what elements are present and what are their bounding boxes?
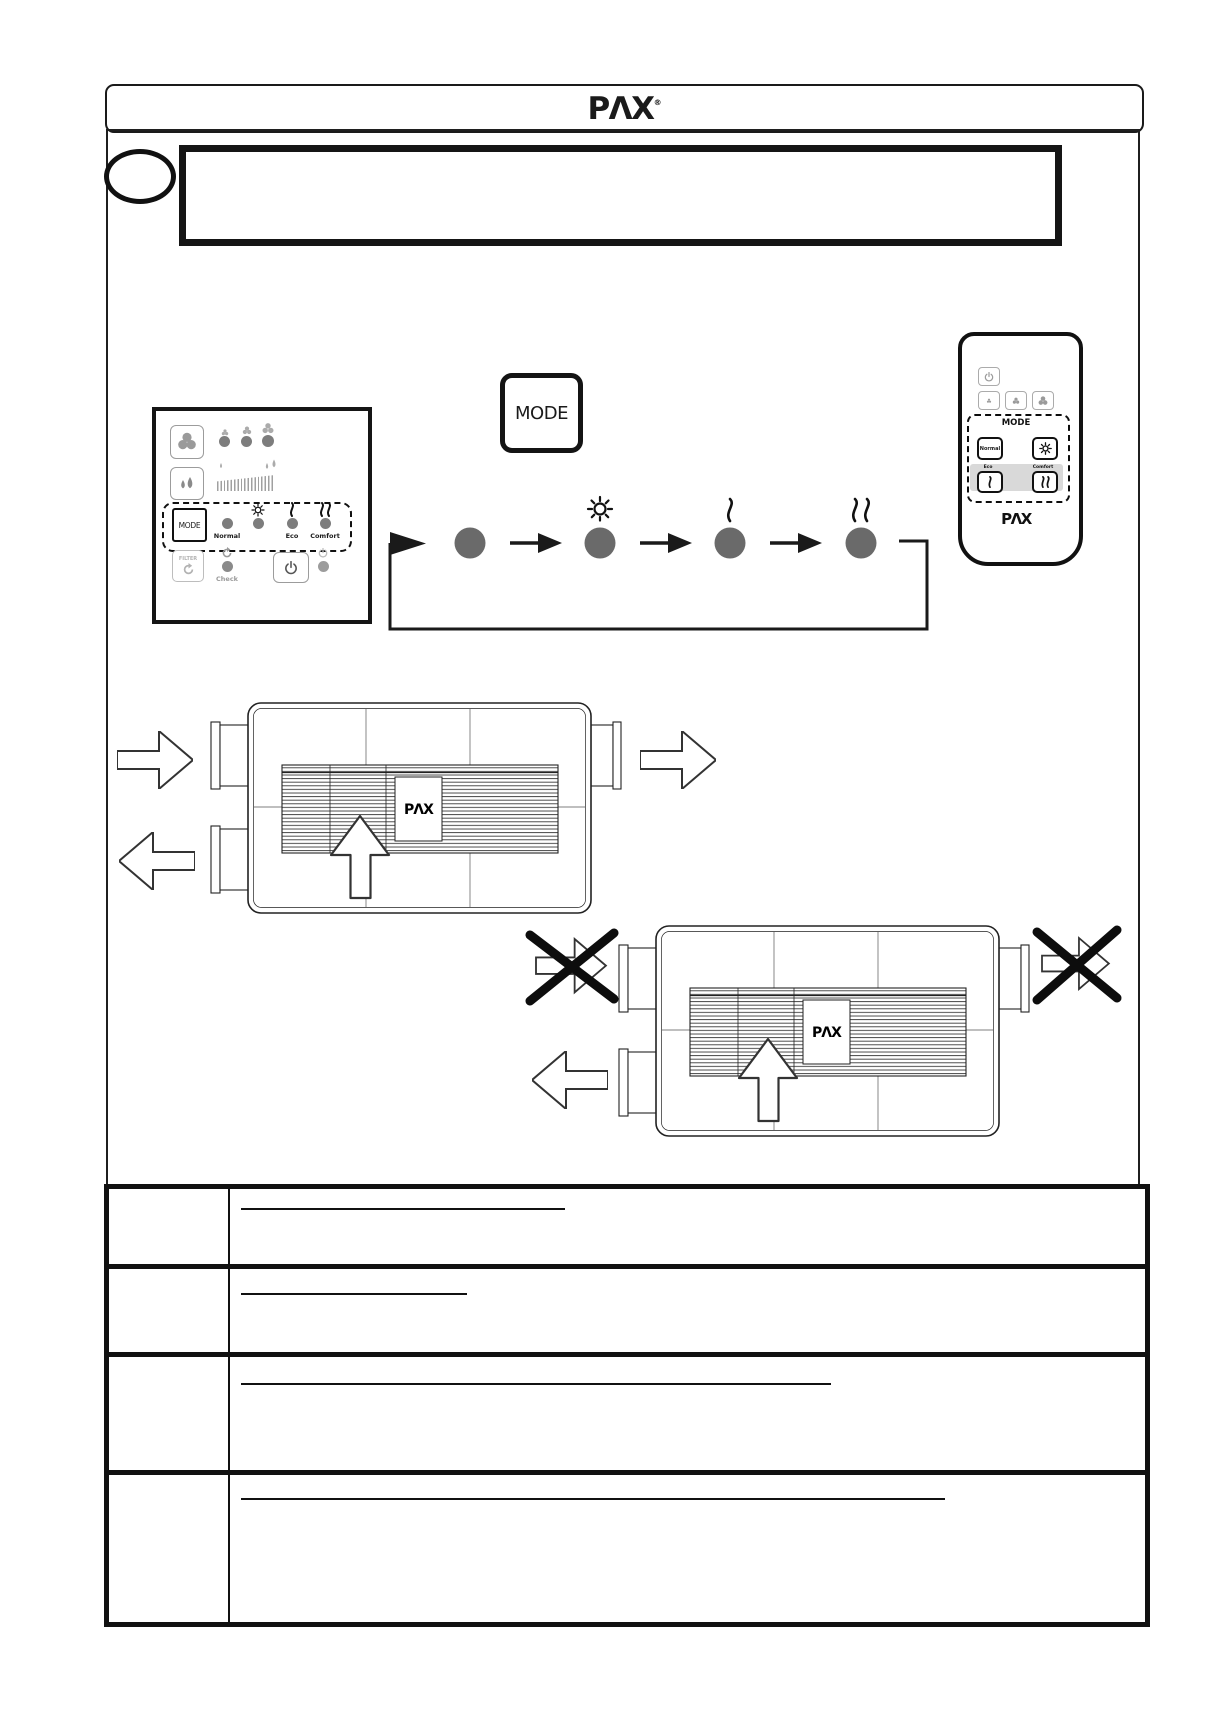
fan-icon <box>985 397 993 405</box>
single-wave-icon <box>728 499 731 521</box>
remote-mode-section-label: MODE <box>1002 418 1031 428</box>
remote-normal-button: Normal <box>977 437 1003 460</box>
double-wave-icon <box>853 499 868 521</box>
humidity-scale <box>217 475 275 491</box>
step-number-badge <box>104 149 176 204</box>
fan-speed-led-2 <box>241 436 252 447</box>
check-label: Check <box>216 575 238 583</box>
table-column-divider <box>228 1189 230 1622</box>
step-eco-dot <box>715 528 746 559</box>
filter-refresh-icon <box>182 563 195 576</box>
mode-label-eco: Eco <box>286 532 299 540</box>
fan-speed-led-3 <box>262 435 274 447</box>
check-led <box>222 561 233 572</box>
power-led <box>318 561 329 572</box>
remote-comfort-button <box>1032 471 1058 493</box>
ventilation-unit-1 <box>210 702 622 914</box>
outflow-arrow-icon <box>119 832 195 890</box>
fan-icon <box>176 431 198 453</box>
power-led-icon <box>318 548 328 558</box>
row3-heading-underline <box>241 1383 831 1385</box>
double-wave-icon <box>321 503 330 516</box>
mode-cycle-diagram <box>370 495 970 655</box>
blocked-inflow-arrow-icon <box>524 928 620 1006</box>
blocked-exhaust-arrow-icon <box>1030 924 1124 1006</box>
row4-heading-underline <box>241 1498 945 1500</box>
remote-fan-mid-button <box>1005 391 1027 410</box>
single-wave-icon <box>291 503 293 516</box>
outflow-arrow-icon <box>532 1051 608 1109</box>
table-row-divider <box>109 1352 1145 1357</box>
check-refresh-icon <box>221 547 233 559</box>
mode-led-normal <box>222 518 233 529</box>
mode-label-comfort: Comfort <box>310 532 340 540</box>
header-bar: PΛX® <box>105 84 1144 133</box>
section-title-box <box>179 145 1062 246</box>
fan-icon <box>1037 395 1049 407</box>
step-arrow-icon <box>770 533 822 553</box>
mode-led-comfort <box>320 518 331 529</box>
remote-eco-label: Eco <box>984 465 993 470</box>
filter-button: FILTER <box>172 550 204 582</box>
humidity-button <box>170 467 204 500</box>
mode-led-sun <box>253 518 264 529</box>
power-icon <box>984 372 994 382</box>
mode-led-eco <box>287 518 298 529</box>
remote-control: MODE Normal Eco Comfort <box>958 332 1083 566</box>
step-arrow-icon <box>640 533 692 553</box>
row2-heading-underline <box>241 1293 467 1295</box>
mode-button-large-label: MODE <box>515 403 568 424</box>
manual-page: PΛX PΛX® <box>0 0 1225 1718</box>
exhaust-arrow-icon <box>640 731 716 789</box>
mode-label-normal: Normal <box>214 532 241 540</box>
step-comfort-dot <box>846 528 877 559</box>
control-panel: MODE Normal Eco Comfort <box>152 407 372 624</box>
ventilation-unit-2 <box>618 925 1030 1137</box>
drops-icon <box>177 474 197 494</box>
panel-mode-button: MODE <box>172 508 207 542</box>
power-icon <box>284 561 298 575</box>
humidity-scale-drops-icon <box>217 459 279 475</box>
table-row-divider <box>109 1470 1145 1475</box>
remote-normal-button-label: Normal <box>980 446 1000 452</box>
filter-button-label: FILTER <box>179 556 197 562</box>
remote-pax-logo: PΛX <box>1001 510 1031 528</box>
row1-heading-underline <box>241 1208 565 1210</box>
fan-speed-led-1 <box>219 436 230 447</box>
remote-eco-button <box>977 471 1003 493</box>
fan-icon <box>1011 396 1021 406</box>
remote-fan-high-button <box>1032 391 1054 410</box>
cycle-start-arrow-icon <box>390 532 426 555</box>
panel-mode-button-label: MODE <box>179 521 201 530</box>
mode-button-large: MODE <box>500 373 583 453</box>
fan-speed-button <box>170 425 204 459</box>
remote-comfort-label: Comfort <box>1033 465 1054 470</box>
inflow-arrow-icon <box>117 731 193 789</box>
table-row-divider <box>109 1264 1145 1269</box>
single-wave-icon <box>985 476 995 488</box>
double-wave-icon <box>1039 476 1052 488</box>
pax-logo-text: PΛX <box>587 91 653 127</box>
panel-power-button <box>273 552 309 583</box>
remote-fan-low-button <box>978 391 1000 410</box>
info-table <box>104 1184 1150 1627</box>
pax-logo: PΛX® <box>587 91 661 127</box>
registered-mark-icon: ® <box>654 98 662 107</box>
sun-icon <box>1039 442 1052 455</box>
step-sun-dot <box>585 528 616 559</box>
remote-power-button <box>978 367 1000 386</box>
sun-icon <box>252 504 264 516</box>
step-normal-dot <box>455 528 486 559</box>
sun-icon <box>588 497 612 521</box>
step-arrow-icon <box>510 533 562 553</box>
remote-sun-button <box>1032 437 1058 460</box>
